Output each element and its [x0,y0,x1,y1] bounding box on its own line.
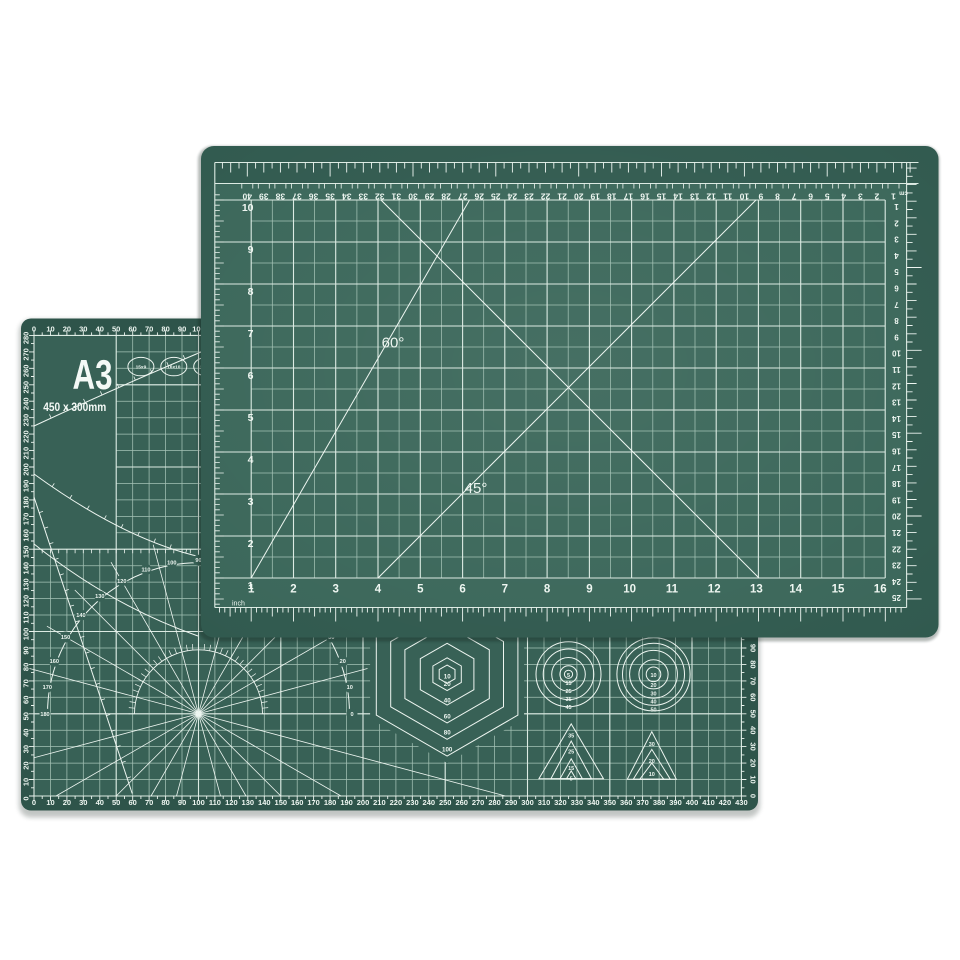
svg-text:70: 70 [145,798,153,807]
svg-text:170: 170 [307,798,320,807]
svg-text:2: 2 [894,218,899,227]
svg-text:38: 38 [275,192,285,202]
svg-text:60: 60 [22,696,31,704]
svg-text:230: 230 [406,798,419,807]
svg-text:130: 130 [95,594,104,600]
svg-text:40: 40 [650,700,656,706]
svg-text:420: 420 [719,798,732,807]
svg-text:60: 60 [129,325,137,334]
svg-text:0: 0 [32,798,36,807]
svg-text:80: 80 [749,660,758,668]
svg-text:80: 80 [22,663,31,671]
svg-text:30: 30 [649,742,655,748]
svg-text:1: 1 [894,202,899,211]
svg-text:250: 250 [439,798,452,807]
svg-text:23: 23 [892,561,901,570]
svg-text:150: 150 [22,546,31,559]
svg-text:5: 5 [894,267,899,276]
svg-text:270: 270 [22,348,31,361]
svg-text:31: 31 [391,192,401,202]
svg-text:0: 0 [350,712,353,718]
svg-text:7: 7 [248,328,254,340]
svg-text:16: 16 [640,192,650,202]
svg-text:20: 20 [892,512,901,521]
svg-text:1: 1 [891,192,896,202]
svg-text:7: 7 [502,584,508,596]
svg-text:22: 22 [892,544,901,553]
svg-text:10: 10 [892,349,901,358]
svg-text:26: 26 [474,192,484,202]
svg-text:300: 300 [521,798,534,807]
svg-text:17: 17 [892,463,901,472]
svg-text:13: 13 [892,398,901,407]
svg-text:390: 390 [669,798,682,807]
svg-text:240: 240 [423,798,436,807]
svg-text:0: 0 [32,325,36,334]
svg-text:10: 10 [649,772,655,778]
svg-text:60: 60 [444,713,451,720]
svg-text:11: 11 [666,584,679,596]
svg-text:50: 50 [112,325,120,334]
svg-text:170: 170 [43,685,52,691]
svg-text:150: 150 [61,635,70,641]
svg-text:10: 10 [650,673,656,679]
svg-text:8: 8 [775,192,780,202]
svg-text:2: 2 [874,192,879,202]
svg-text:5: 5 [248,412,254,424]
svg-text:8: 8 [248,286,254,298]
svg-text:20: 20 [63,798,71,807]
svg-text:7: 7 [791,192,796,202]
svg-text:15: 15 [832,584,845,596]
svg-text:19: 19 [590,192,600,202]
svg-text:210: 210 [373,798,386,807]
svg-text:35: 35 [325,192,335,202]
svg-text:36: 36 [309,192,319,202]
svg-text:10: 10 [46,325,54,334]
svg-text:380: 380 [653,798,666,807]
svg-text:370: 370 [636,798,649,807]
svg-text:3: 3 [332,584,338,596]
svg-text:280: 280 [488,798,501,807]
svg-text:60°: 60° [382,335,405,352]
svg-text:180: 180 [22,496,31,509]
svg-text:20: 20 [749,759,758,767]
svg-text:130: 130 [242,798,255,807]
svg-text:15x9: 15x9 [136,365,147,371]
svg-text:120: 120 [117,579,126,585]
svg-text:40: 40 [96,798,104,807]
svg-text:12: 12 [892,381,901,390]
svg-text:110: 110 [141,568,150,574]
svg-text:10: 10 [749,775,758,783]
svg-text:9: 9 [758,192,763,202]
svg-text:3: 3 [248,496,254,508]
svg-text:430: 430 [735,798,748,807]
svg-text:170: 170 [22,513,31,526]
svg-text:23: 23 [524,192,534,202]
svg-text:30: 30 [650,692,656,698]
svg-text:6: 6 [808,192,813,202]
svg-text:4: 4 [841,192,846,202]
svg-text:190: 190 [340,798,353,807]
svg-text:20: 20 [444,681,451,688]
svg-text:190: 190 [22,480,31,493]
svg-text:45: 45 [565,705,571,711]
svg-text:3: 3 [858,192,863,202]
svg-text:15: 15 [565,681,571,687]
svg-text:9: 9 [586,584,592,596]
svg-text:21: 21 [557,192,567,202]
svg-text:15: 15 [657,192,667,202]
svg-text:25: 25 [565,689,571,695]
svg-text:14: 14 [892,414,901,423]
svg-text:40: 40 [444,698,451,705]
svg-text:80: 80 [161,325,169,334]
svg-text:160: 160 [22,529,31,542]
svg-text:40: 40 [242,192,252,202]
svg-text:20: 20 [574,192,584,202]
svg-text:30: 30 [749,742,758,750]
svg-text:11: 11 [723,192,732,202]
svg-text:4: 4 [248,454,254,466]
svg-text:90: 90 [22,646,31,654]
svg-text:180: 180 [324,798,337,807]
svg-text:13: 13 [690,192,700,202]
svg-text:160: 160 [50,659,59,665]
svg-text:60: 60 [129,798,137,807]
svg-text:15: 15 [568,766,574,772]
svg-text:290: 290 [505,798,518,807]
svg-text:20: 20 [63,325,71,334]
svg-text:130: 130 [22,578,31,591]
svg-text:25: 25 [892,593,901,602]
svg-text:100: 100 [192,798,205,807]
svg-text:110: 110 [209,798,221,807]
svg-text:220: 220 [390,798,403,807]
svg-text:180: 180 [40,712,49,718]
svg-text:19: 19 [892,495,901,504]
svg-text:40: 40 [96,325,104,334]
svg-text:400: 400 [686,798,699,807]
svg-text:330: 330 [571,798,584,807]
svg-text:7: 7 [894,300,899,309]
svg-text:10: 10 [444,674,451,681]
svg-text:100: 100 [22,628,31,641]
svg-text:15: 15 [892,430,901,439]
svg-text:260: 260 [455,798,468,807]
svg-text:cm: cm [899,190,908,196]
svg-text:10: 10 [623,584,636,596]
svg-text:100: 100 [167,561,176,567]
svg-text:150: 150 [275,798,288,807]
svg-text:6: 6 [459,584,465,596]
svg-text:30: 30 [22,745,31,753]
svg-text:310: 310 [538,798,551,807]
svg-text:230: 230 [22,414,31,427]
svg-text:80: 80 [444,729,451,736]
svg-text:24: 24 [507,192,517,202]
svg-text:25: 25 [568,750,574,756]
svg-text:11: 11 [892,365,901,374]
svg-text:50: 50 [22,712,31,720]
svg-text:20: 20 [22,761,31,769]
svg-text:39: 39 [259,192,269,202]
svg-text:17: 17 [623,192,633,202]
svg-text:24: 24 [892,577,901,586]
svg-text:0: 0 [749,794,758,798]
svg-text:2: 2 [290,584,296,596]
svg-text:100: 100 [442,747,453,754]
svg-text:25: 25 [491,192,501,202]
svg-text:1: 1 [248,580,254,592]
svg-text:40: 40 [749,726,758,734]
svg-text:2: 2 [248,538,254,550]
svg-text:30: 30 [79,798,87,807]
svg-text:280: 280 [22,332,31,345]
svg-text:8: 8 [894,316,899,325]
svg-text:9: 9 [894,332,899,341]
svg-text:90: 90 [178,798,186,807]
svg-text:A3: A3 [73,351,113,398]
svg-text:250: 250 [22,381,31,394]
svg-text:50: 50 [650,708,656,714]
svg-text:110: 110 [22,611,31,623]
svg-text:20: 20 [650,683,656,689]
svg-text:22: 22 [541,192,551,202]
svg-text:14: 14 [673,192,683,202]
svg-text:32: 32 [375,192,385,202]
svg-text:10: 10 [739,192,749,202]
svg-text:80: 80 [161,798,169,807]
svg-text:5: 5 [570,776,573,782]
svg-text:140: 140 [22,562,31,575]
svg-text:40: 40 [22,729,31,737]
svg-text:4: 4 [375,584,382,596]
svg-text:6: 6 [248,370,254,382]
svg-text:360: 360 [620,798,633,807]
svg-text:18: 18 [892,479,901,488]
svg-text:340: 340 [587,798,600,807]
svg-text:260: 260 [22,365,31,378]
svg-text:220: 220 [22,430,31,443]
svg-text:160: 160 [291,798,304,807]
svg-text:200: 200 [22,463,31,476]
svg-text:120: 120 [22,595,31,608]
svg-text:90: 90 [178,325,186,334]
svg-text:0: 0 [22,796,31,800]
svg-text:20: 20 [340,659,346,665]
svg-text:200: 200 [357,798,370,807]
svg-text:70: 70 [749,677,758,685]
svg-text:10: 10 [46,798,54,807]
svg-text:14: 14 [789,584,802,596]
svg-text:20: 20 [649,759,655,765]
svg-text:45°: 45° [465,480,488,497]
svg-text:30: 30 [408,192,418,202]
svg-text:5: 5 [825,192,830,202]
svg-text:5: 5 [567,673,570,679]
svg-text:410: 410 [702,798,715,807]
svg-text:320: 320 [554,798,567,807]
svg-text:13: 13 [750,584,763,596]
svg-text:35: 35 [568,734,574,740]
svg-text:140: 140 [258,798,271,807]
svg-text:9: 9 [248,244,254,256]
svg-text:18: 18 [607,192,617,202]
svg-text:21: 21 [892,528,901,537]
svg-text:140: 140 [76,613,85,619]
svg-text:29: 29 [425,192,435,202]
svg-text:120: 120 [225,798,238,807]
svg-text:210: 210 [22,447,31,460]
svg-text:inch: inch [232,601,245,608]
svg-text:50: 50 [112,798,120,807]
svg-text:16: 16 [874,584,887,596]
svg-text:6: 6 [894,284,899,293]
svg-text:90: 90 [749,644,758,652]
svg-text:35: 35 [565,697,571,703]
svg-text:28: 28 [441,192,451,202]
svg-text:10: 10 [242,202,254,214]
svg-text:10: 10 [22,778,31,786]
svg-text:34: 34 [342,192,352,202]
svg-text:70: 70 [22,679,31,687]
svg-text:70: 70 [145,325,153,334]
svg-text:27: 27 [458,192,468,202]
svg-text:5: 5 [417,584,424,596]
svg-text:8: 8 [544,584,551,596]
svg-text:50: 50 [749,710,758,718]
svg-text:30: 30 [79,325,87,334]
svg-text:240: 240 [22,397,31,410]
svg-text:33: 33 [358,192,368,202]
svg-text:350: 350 [604,798,617,807]
svg-text:12: 12 [706,192,716,202]
svg-text:10: 10 [347,685,353,691]
svg-text:60: 60 [749,693,758,701]
svg-text:3: 3 [894,235,899,244]
svg-text:37: 37 [292,192,302,202]
svg-text:12: 12 [708,584,721,596]
svg-text:270: 270 [472,798,485,807]
svg-text:16: 16 [892,447,901,456]
svg-text:4: 4 [894,251,899,260]
